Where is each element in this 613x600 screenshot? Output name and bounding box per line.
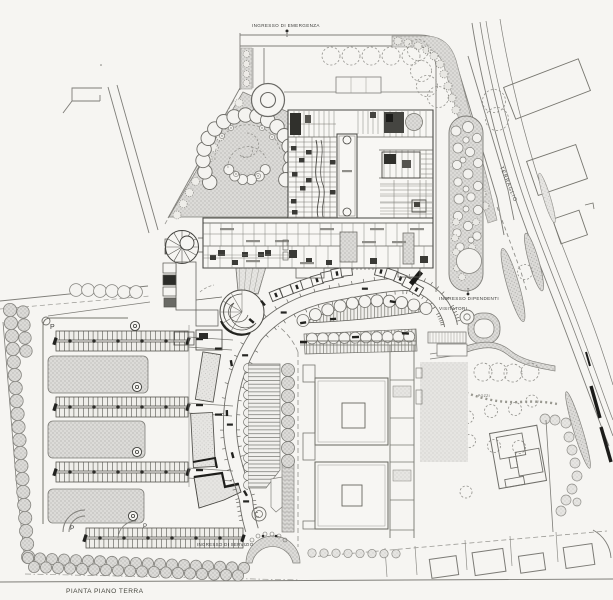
svg-text:VISITATORI: VISITATORI — [439, 306, 467, 311]
svg-text:PIANTA PIANO TERRA: PIANTA PIANO TERRA — [66, 588, 144, 595]
svg-text:INGRESSO DIPENDENTI: INGRESSO DIPENDENTI — [439, 296, 499, 301]
svg-text:P: P — [70, 525, 74, 532]
svg-text:POZZI: POZZI — [478, 394, 490, 398]
svg-text:INGRESSO DI EMERGENZA: INGRESSO DI EMERGENZA — [252, 23, 320, 28]
svg-text:P: P — [143, 524, 147, 530]
svg-text:P: P — [50, 324, 55, 331]
svg-text:INGRESSO DI SERVIZIO: INGRESSO DI SERVIZIO — [197, 542, 254, 547]
